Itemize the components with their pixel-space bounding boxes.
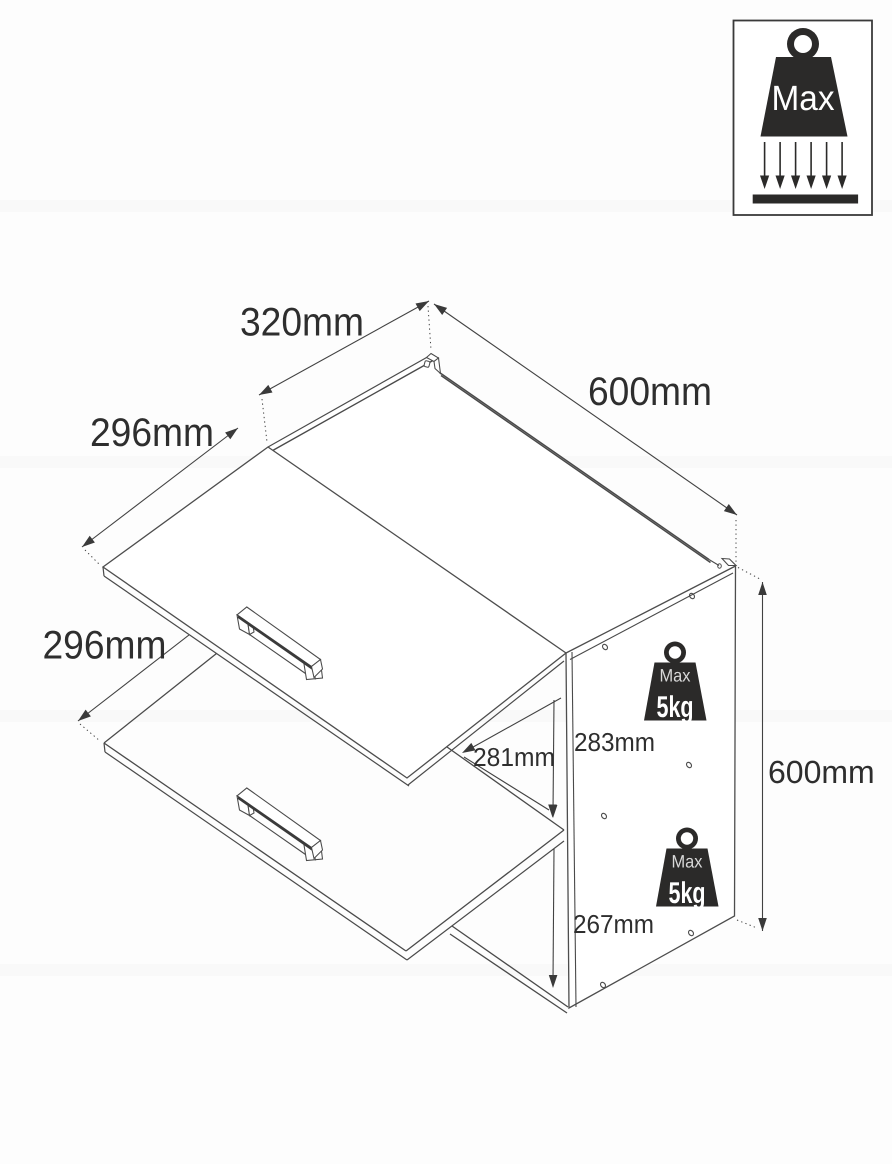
svg-text:600mm: 600mm [588,370,712,414]
svg-text:Max: Max [660,666,691,686]
svg-text:296mm: 296mm [90,411,214,455]
svg-text:267mm: 267mm [573,909,654,939]
svg-text:Max: Max [672,852,703,872]
svg-text:600mm: 600mm [768,754,875,790]
svg-text:5kg: 5kg [657,691,694,724]
svg-text:281mm: 281mm [473,742,555,772]
svg-text:283mm: 283mm [574,727,655,757]
svg-text:5kg: 5kg [669,877,706,910]
svg-text:Max: Max [772,79,835,118]
svg-text:320mm: 320mm [240,301,364,345]
svg-text:296mm: 296mm [43,624,167,668]
